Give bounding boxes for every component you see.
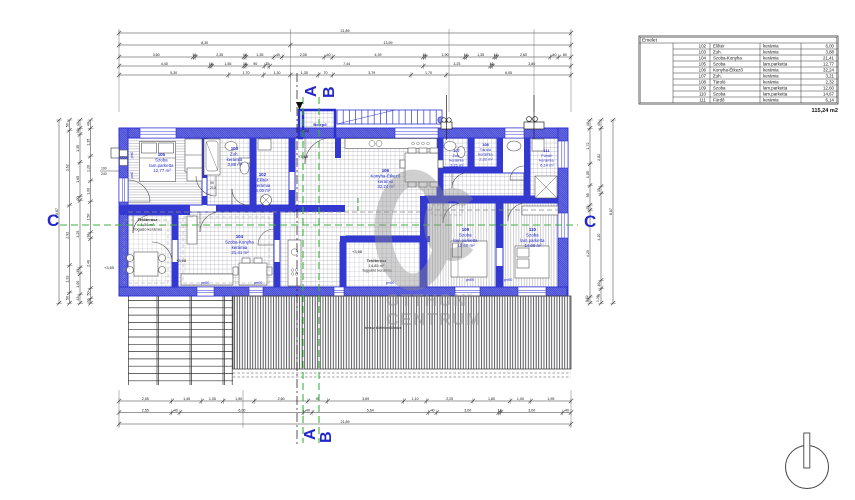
svg-text:A: A <box>302 428 319 440</box>
svg-text:104: 104 <box>699 56 707 61</box>
svg-text:3,62: 3,62 <box>66 164 70 171</box>
svg-text:3,60: 3,60 <box>153 53 160 57</box>
svg-text:100: 100 <box>101 167 107 171</box>
svg-text:1,30: 1,30 <box>274 71 281 75</box>
svg-text:+3,65: +3,65 <box>104 265 115 270</box>
svg-text:pm0: pm0 <box>130 172 134 179</box>
svg-text:21,41: 21,41 <box>823 56 835 61</box>
svg-text:Konyha-Étkező: Konyha-Étkező <box>713 68 743 73</box>
svg-text:+3,68: +3,68 <box>176 258 187 263</box>
svg-text:1,50: 1,50 <box>235 397 242 401</box>
svg-text:35: 35 <box>597 188 601 192</box>
svg-text:Szoba: Szoba <box>713 92 726 97</box>
svg-text:5,64: 5,64 <box>367 408 374 412</box>
svg-text:40: 40 <box>87 122 91 126</box>
svg-text:1,55: 1,55 <box>224 62 231 66</box>
svg-text:Szoba: Szoba <box>713 86 726 91</box>
svg-text:1,10: 1,10 <box>412 397 419 401</box>
svg-text:40: 40 <box>586 122 590 126</box>
svg-text:1,72: 1,72 <box>586 143 590 150</box>
svg-text:1,00: 1,00 <box>87 188 91 195</box>
svg-text:lam.parketta: lam.parketta <box>763 62 788 67</box>
svg-text:+3,68: +3,68 <box>352 249 363 254</box>
svg-text:B: B <box>321 86 338 98</box>
svg-text:Szoba-Konyha: Szoba-Konyha <box>713 56 742 61</box>
svg-text:1,70: 1,70 <box>425 71 432 75</box>
svg-text:40: 40 <box>276 53 280 57</box>
svg-text:+3,68: +3,68 <box>299 128 310 133</box>
svg-text:lam.parketta: lam.parketta <box>763 86 788 91</box>
svg-text:14,67: 14,67 <box>823 92 835 97</box>
svg-text:40: 40 <box>174 408 178 412</box>
svg-text:30: 30 <box>76 129 80 133</box>
svg-text:210: 210 <box>210 186 216 190</box>
svg-text:102: 102 <box>699 44 707 49</box>
svg-text:40: 40 <box>565 408 569 412</box>
svg-text:60: 60 <box>563 53 567 57</box>
svg-text:kerámia: kerámia <box>763 98 779 103</box>
svg-text:kerámia: kerámia <box>763 74 779 79</box>
svg-text:Zuh.: Zuh. <box>713 74 722 79</box>
svg-text:2,05: 2,05 <box>300 53 307 57</box>
svg-text:1,35: 1,35 <box>76 145 80 152</box>
svg-text:22: 22 <box>87 299 91 303</box>
svg-text:1,05: 1,05 <box>586 171 590 178</box>
svg-text:3,79: 3,79 <box>368 71 375 75</box>
svg-text:1,20: 1,20 <box>87 165 91 172</box>
svg-text:C: C <box>47 211 59 230</box>
svg-text:40: 40 <box>597 283 601 287</box>
svg-text:kerámia: kerámia <box>763 50 779 55</box>
svg-text:Szoba: Szoba <box>713 62 726 67</box>
svg-text:13,59: 13,59 <box>384 41 393 45</box>
svg-text:90: 90 <box>253 62 257 66</box>
svg-text:109: 109 <box>699 86 707 91</box>
svg-text:1,35: 1,35 <box>477 53 484 57</box>
svg-text:3,00: 3,00 <box>464 408 471 412</box>
svg-text:105: 105 <box>699 62 707 67</box>
svg-text:OTTHON®: OTTHON® <box>386 290 473 310</box>
svg-text:4,40: 4,40 <box>161 62 168 66</box>
svg-text:Előtér: Előtér <box>713 44 725 49</box>
svg-text:2,32: 2,32 <box>825 80 834 85</box>
svg-text:Emelet: Emelet <box>642 38 658 44</box>
svg-text:Fürdő: Fürdő <box>713 98 725 103</box>
svg-text:95: 95 <box>586 193 590 197</box>
svg-text:30: 30 <box>87 234 91 238</box>
svg-text:1,00: 1,00 <box>517 397 524 401</box>
svg-text:0,00: 0,00 <box>596 295 600 302</box>
svg-text:kerámia: kerámia <box>763 44 779 49</box>
svg-text:4,20: 4,20 <box>586 250 590 257</box>
svg-text:40: 40 <box>76 122 80 126</box>
svg-text:40: 40 <box>553 53 557 57</box>
svg-text:5,30: 5,30 <box>170 71 177 75</box>
svg-text:1,90: 1,90 <box>442 53 449 57</box>
svg-text:kerámia: kerámia <box>763 80 779 85</box>
svg-text:1,70: 1,70 <box>243 71 250 75</box>
svg-text:3,69: 3,69 <box>362 397 369 401</box>
svg-text:pm0: pm0 <box>130 152 134 159</box>
svg-text:1,80: 1,80 <box>488 397 495 401</box>
svg-text:10: 10 <box>209 62 213 66</box>
svg-text:10: 10 <box>464 53 468 57</box>
svg-text:2,92: 2,92 <box>66 232 70 239</box>
svg-text:10: 10 <box>243 53 247 57</box>
svg-text:1,35: 1,35 <box>87 139 91 146</box>
svg-text:C: C <box>584 212 596 231</box>
svg-text:10: 10 <box>498 408 502 412</box>
svg-text:10: 10 <box>422 53 426 57</box>
svg-text:10: 10 <box>192 53 196 57</box>
svg-text:CENTRUM: CENTRUM <box>386 309 482 329</box>
svg-text:40: 40 <box>431 408 435 412</box>
svg-text:3,88: 3,88 <box>825 50 834 55</box>
svg-text:12,77: 12,77 <box>823 62 835 67</box>
svg-text:3,21: 3,21 <box>825 74 834 79</box>
svg-text:32,24: 32,24 <box>823 68 835 73</box>
svg-text:70: 70 <box>324 71 328 75</box>
svg-text:1,95: 1,95 <box>547 397 554 401</box>
svg-text:4,39: 4,39 <box>375 53 382 57</box>
svg-text:kerámia: kerámia <box>763 68 779 73</box>
svg-text:6,05: 6,05 <box>505 71 512 75</box>
svg-text:B: B <box>318 431 335 443</box>
svg-text:2,55: 2,55 <box>142 408 149 412</box>
svg-text:1,65: 1,65 <box>76 176 80 183</box>
svg-text:25: 25 <box>586 206 590 210</box>
svg-text:1,35: 1,35 <box>256 53 263 57</box>
svg-text:108: 108 <box>699 80 707 85</box>
svg-text:4,20: 4,20 <box>597 234 601 241</box>
svg-text:2,40: 2,40 <box>87 260 91 267</box>
svg-text:106: 106 <box>699 68 707 73</box>
svg-text:25: 25 <box>265 62 269 66</box>
svg-text:6,00: 6,00 <box>825 44 834 49</box>
svg-text:7,44: 7,44 <box>343 62 350 66</box>
svg-text:Belépő: Belépő <box>313 122 327 127</box>
svg-text:0,00: 0,00 <box>585 295 589 302</box>
svg-text:115,24 m2: 115,24 m2 <box>812 108 838 114</box>
svg-text:2,35: 2,35 <box>216 53 223 57</box>
svg-text:1,45: 1,45 <box>183 397 190 401</box>
svg-text:3,80: 3,80 <box>528 62 535 66</box>
svg-text:2,25: 2,25 <box>446 397 453 401</box>
svg-text:40: 40 <box>306 408 310 412</box>
svg-text:21,89: 21,89 <box>341 420 350 424</box>
svg-text:pm90: pm90 <box>201 281 210 285</box>
svg-text:21,89: 21,89 <box>341 29 350 33</box>
svg-text:50: 50 <box>66 123 70 127</box>
svg-text:8,87: 8,87 <box>609 208 613 215</box>
svg-text:2,60: 2,60 <box>278 397 285 401</box>
svg-text:2,60: 2,60 <box>520 53 527 57</box>
svg-text:3,25: 3,25 <box>453 62 460 66</box>
svg-text:6,14: 6,14 <box>825 98 834 103</box>
svg-text:2,55: 2,55 <box>142 397 149 401</box>
svg-text:pm90: pm90 <box>466 278 475 282</box>
svg-text:pm90: pm90 <box>504 278 513 282</box>
svg-text:2,82: 2,82 <box>597 154 601 161</box>
svg-text:kerámia: kerámia <box>763 56 779 61</box>
svg-text:12,60: 12,60 <box>823 86 835 91</box>
svg-text:10: 10 <box>494 53 498 57</box>
svg-text:30: 30 <box>76 269 80 273</box>
svg-text:90: 90 <box>210 181 214 185</box>
svg-text:10: 10 <box>243 62 247 66</box>
svg-text:1,50: 1,50 <box>87 214 91 221</box>
svg-text:20: 20 <box>76 197 80 201</box>
svg-text:103: 103 <box>699 50 707 55</box>
svg-text:40: 40 <box>327 53 331 57</box>
svg-text:40: 40 <box>597 122 601 126</box>
svg-text:107: 107 <box>699 74 707 79</box>
svg-text:pm90: pm90 <box>254 281 263 285</box>
svg-text:50: 50 <box>87 292 91 296</box>
svg-text:Zuh.: Zuh. <box>713 50 722 55</box>
svg-text:3,00: 3,00 <box>528 408 535 412</box>
svg-text:1,05: 1,05 <box>209 397 216 401</box>
svg-text:Tároló: Tároló <box>713 80 726 85</box>
svg-text:10: 10 <box>490 62 494 66</box>
svg-text:1,33: 1,33 <box>66 276 70 283</box>
svg-text:3,25: 3,25 <box>76 231 80 238</box>
svg-text:8,30: 8,30 <box>201 41 208 45</box>
svg-text:111: 111 <box>699 98 706 103</box>
svg-text:50: 50 <box>66 296 70 300</box>
svg-text:6,00: 6,00 <box>238 408 245 412</box>
svg-text:1,00: 1,00 <box>76 281 80 288</box>
svg-text:A: A <box>303 85 320 97</box>
svg-text:110: 110 <box>699 92 707 97</box>
svg-text:1,35: 1,35 <box>301 71 308 75</box>
svg-text:42: 42 <box>76 297 80 301</box>
svg-text:240: 240 <box>101 172 107 176</box>
svg-text:lam.parketta: lam.parketta <box>763 92 788 97</box>
